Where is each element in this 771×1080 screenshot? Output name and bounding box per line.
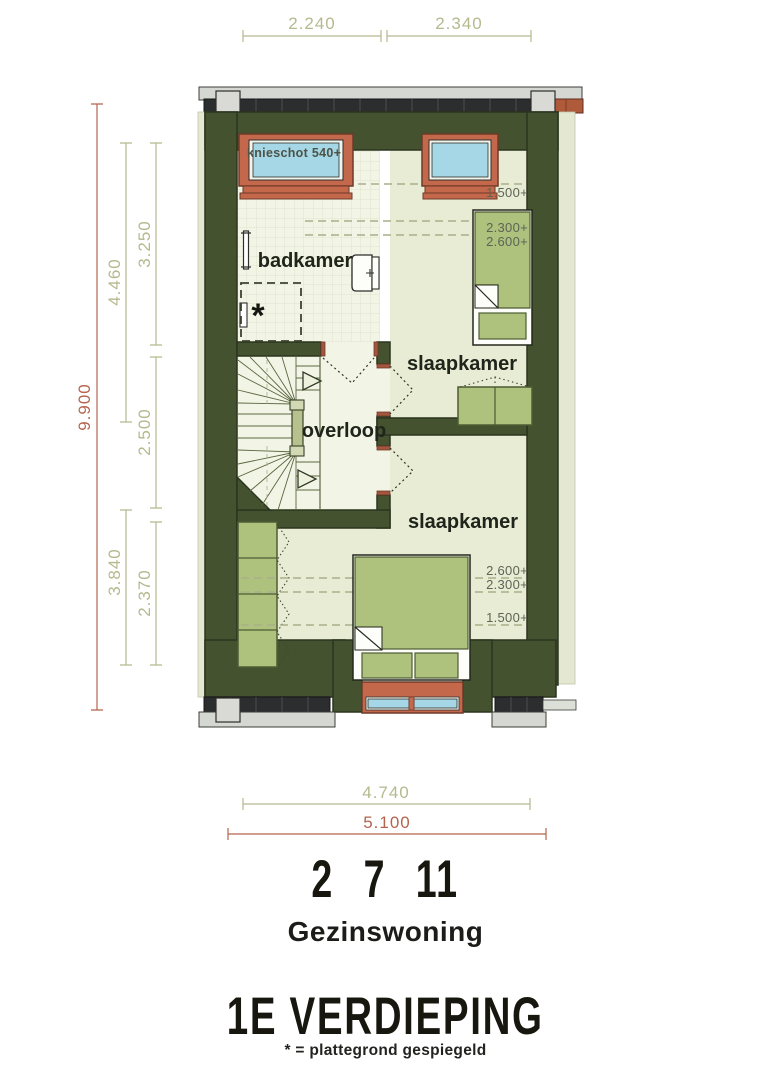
bathroom-south-wall (237, 342, 321, 356)
radiator-icon (244, 231, 249, 269)
dim-left-3840: 3.840 (105, 548, 124, 596)
floor-name: 1E VERDIEPING (0, 988, 771, 1043)
pillow (362, 653, 412, 678)
nightstand (479, 313, 526, 339)
room-label-overloop: overloop (302, 420, 386, 442)
pillow (415, 653, 458, 678)
wall-edge-strip-left (198, 112, 205, 697)
stair-newel (290, 446, 304, 456)
bed-double-bedroom2 (353, 555, 470, 680)
mirror-asterisk: * (251, 297, 265, 335)
dim-bottom-inner: 4.740 (362, 783, 410, 802)
mirror-footnote: * = plattegrond gespiegeld (0, 1042, 771, 1060)
room-label-slaapkamer2: slaapkamer (408, 511, 518, 533)
dim-top-left: 2.240 (288, 14, 336, 33)
svg-text:1.500+: 1.500+ (486, 610, 528, 625)
dim-left-4460: 4.460 (105, 258, 124, 306)
room-label-slaapkamer1: slaapkamer (407, 353, 517, 375)
svg-text:2.300+: 2.300+ (486, 577, 528, 592)
window-dormer-bedroom2 (362, 682, 463, 713)
window-bathroom (239, 134, 353, 199)
svg-text:1.500+: 1.500+ (486, 185, 528, 200)
house-type: Gezinswoning (0, 916, 771, 948)
dim-left-2370: 2.370 (135, 569, 154, 617)
dim-top-right: 2.340 (435, 14, 483, 33)
partition-chunk (377, 342, 390, 364)
unit-numbers: 2 7 11 (0, 851, 771, 906)
stair-newel (290, 400, 304, 410)
dim-left-total: 9.900 (75, 383, 94, 431)
svg-text:2.600+: 2.600+ (486, 563, 528, 578)
room-label-badkamer: badkamer (258, 250, 353, 272)
knieschot-label: knieschot 540+ (247, 146, 341, 160)
neighbor-gutter (543, 700, 576, 710)
dim-left-3250: 3.250 (135, 220, 154, 268)
svg-text:2.600+: 2.600+ (486, 234, 528, 249)
floorplan-page: knieschot 540+ badkamer overloop slaapka… (0, 0, 771, 1080)
svg-text:2.300+: 2.300+ (486, 220, 528, 235)
floorplan-drawing: knieschot 540+ badkamer overloop slaapka… (0, 0, 771, 860)
dim-left-2500: 2.500 (135, 408, 154, 456)
dim-bottom-total: 5.100 (363, 813, 411, 832)
roof-edge-top (199, 87, 583, 115)
wall-left (205, 112, 237, 697)
downpipe-bottom-left (216, 698, 240, 722)
neighbor-wall-strip-right (558, 112, 575, 684)
